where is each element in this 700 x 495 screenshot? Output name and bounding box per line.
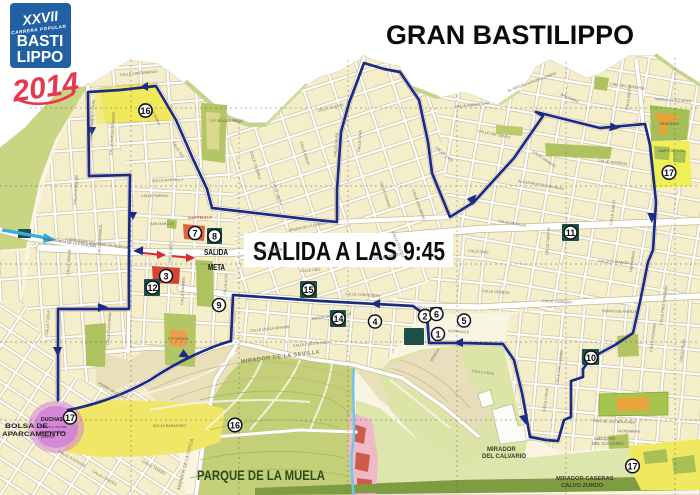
- svg-text:3: 3: [163, 271, 168, 281]
- svg-text:6: 6: [434, 309, 439, 319]
- svg-text:META: META: [208, 263, 225, 272]
- svg-text:16: 16: [230, 420, 240, 430]
- svg-text:CAMPO DE FERIA: CAMPO DE FERIA: [658, 149, 686, 153]
- svg-text:BOLAS BARATARIO: BOLAS BARATARIO: [153, 424, 186, 428]
- svg-text:BOLSA DE: BOLSA DE: [5, 423, 49, 430]
- svg-text:MERCADO A.: MERCADO A.: [660, 122, 680, 126]
- svg-text:LIPPO: LIPPO: [17, 49, 64, 66]
- svg-text:CUARTELILLO: CUARTELILLO: [188, 215, 212, 220]
- svg-text:7: 7: [192, 228, 197, 238]
- svg-text:DEL CALVARIO: DEL CALVARIO: [482, 454, 526, 460]
- svg-text:GRAN BASTILIPPO: GRAN BASTILIPPO: [386, 20, 634, 50]
- svg-text:4: 4: [372, 317, 377, 327]
- svg-text:12: 12: [147, 283, 157, 293]
- svg-text:ALDEBARAN: ALDEBARAN: [618, 429, 640, 434]
- svg-text:C.P. VIRGEN: C.P. VIRGEN: [168, 337, 189, 341]
- svg-text:8: 8: [212, 231, 217, 241]
- svg-text:SAN MARCOS: SAN MARCOS: [150, 222, 175, 226]
- svg-text:10: 10: [586, 353, 596, 363]
- svg-text:APARCAMIENTO: APARCAMIENTO: [2, 431, 66, 438]
- svg-text:11: 11: [566, 228, 576, 238]
- svg-text:BASTI: BASTI: [17, 33, 64, 50]
- svg-text:9: 9: [216, 300, 221, 310]
- svg-text:DEL CALVARIO: DEL CALVARIO: [592, 441, 624, 446]
- svg-text:15: 15: [303, 285, 313, 295]
- svg-text:16: 16: [140, 106, 150, 116]
- svg-text:17: 17: [664, 168, 674, 178]
- svg-text:MIRADOR: MIRADOR: [487, 447, 516, 453]
- svg-text:1: 1: [435, 329, 440, 339]
- svg-text:CALLE PARRAS: CALLE PARRAS: [141, 194, 168, 198]
- svg-text:2: 2: [422, 311, 427, 321]
- svg-text:17: 17: [627, 461, 637, 471]
- svg-text:17: 17: [65, 413, 75, 423]
- svg-text:PARQUE DE LA MUELA: PARQUE DE LA MUELA: [197, 467, 325, 483]
- svg-text:5: 5: [461, 316, 466, 326]
- svg-text:14: 14: [333, 314, 343, 324]
- svg-text:SALIDA: SALIDA: [204, 248, 228, 257]
- svg-text:C.P. SELGAS PRADO: C.P. SELGAS PRADO: [210, 119, 244, 123]
- svg-text:MIRADOR CASERAS: MIRADOR CASERAS: [556, 476, 614, 482]
- svg-text:CALVO ZURDO: CALVO ZURDO: [561, 483, 604, 489]
